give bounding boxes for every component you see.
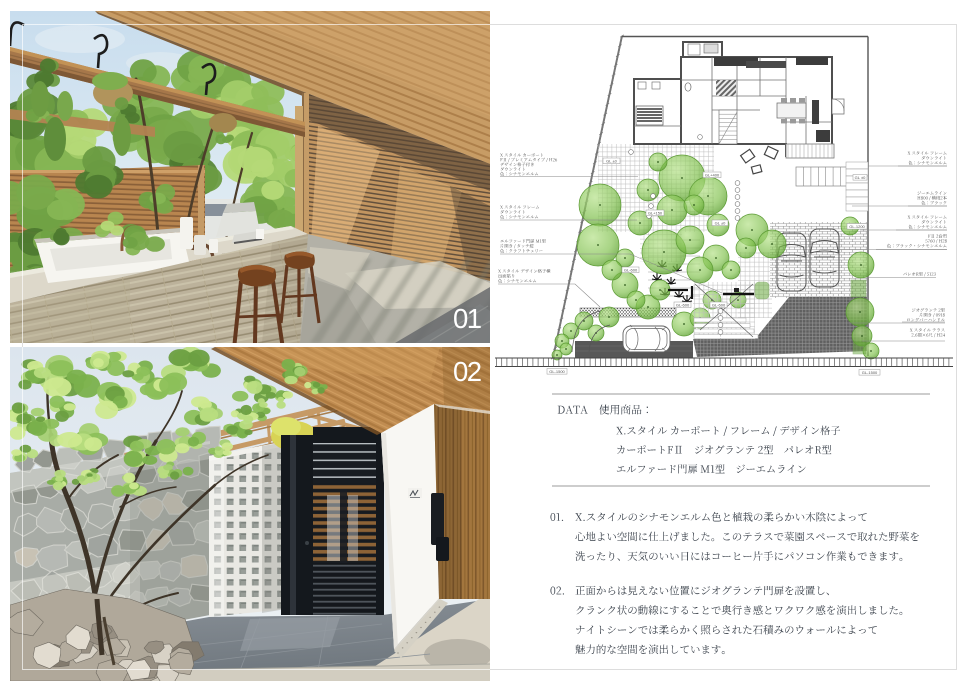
svg-text:GL-1200: GL-1200 (849, 224, 865, 229)
svg-text:GL ±0: GL ±0 (855, 175, 866, 180)
svg-text:GL+400: GL+400 (705, 172, 720, 177)
svg-text:GL-1500: GL-1500 (549, 369, 565, 374)
svg-text:GL-600: GL-600 (676, 302, 690, 307)
svg-text:GL-600: GL-600 (712, 302, 726, 307)
svg-text:GL ±0: GL ±0 (606, 158, 617, 163)
svg-text:GL ±0: GL ±0 (715, 220, 726, 225)
svg-text:GL-1500: GL-1500 (862, 370, 878, 375)
svg-text:GL+150: GL+150 (648, 210, 663, 215)
svg-text:GL-600: GL-600 (624, 267, 638, 272)
